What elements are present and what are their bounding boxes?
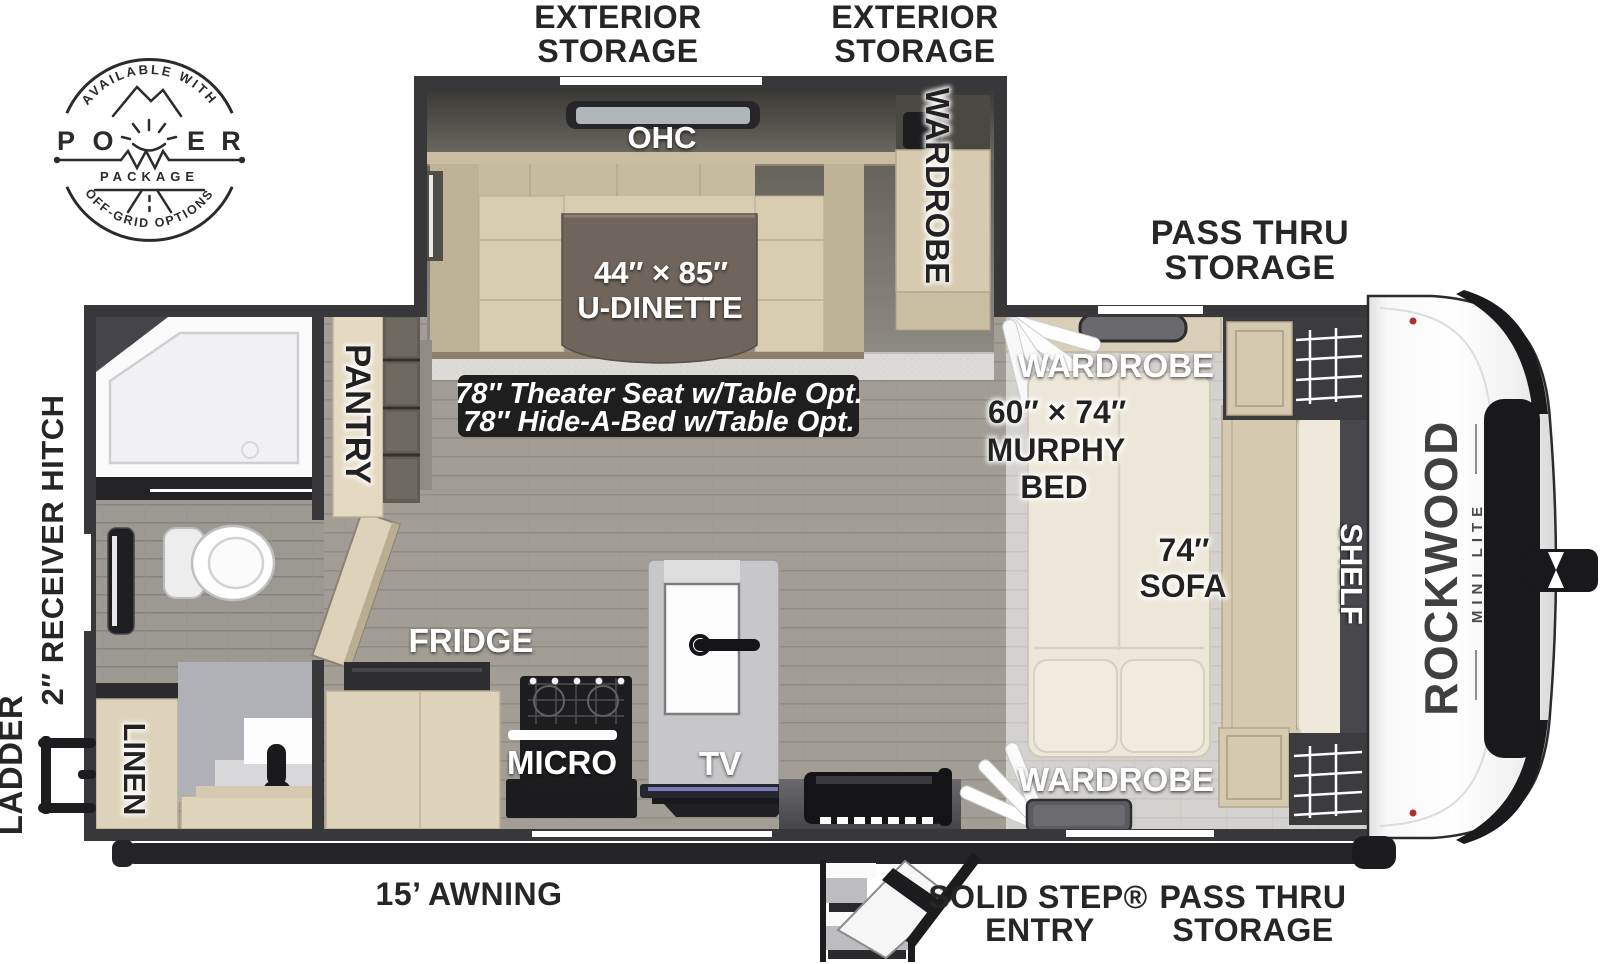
svg-text:STORAGE: STORAGE: [537, 33, 698, 69]
svg-text:60″ × 74″: 60″ × 74″: [988, 394, 1126, 430]
svg-text:78″ Hide-A-Bed w/Table Opt.: 78″ Hide-A-Bed w/Table Opt.: [463, 406, 854, 438]
svg-text:SOFA: SOFA: [1139, 568, 1226, 604]
svg-text:ENTRY: ENTRY: [985, 912, 1095, 948]
svg-text:SOLID STEP®: SOLID STEP®: [928, 879, 1147, 915]
svg-text:EXTERIOR: EXTERIOR: [831, 0, 999, 35]
svg-text:MINI LITE: MINI LITE: [1469, 501, 1486, 623]
svg-text:WARDROBE: WARDROBE: [1018, 761, 1214, 798]
svg-text:ROCKWOOD: ROCKWOOD: [1415, 420, 1467, 716]
svg-text:WARDROBE: WARDROBE: [919, 88, 956, 284]
svg-text:MICRO: MICRO: [507, 744, 617, 781]
svg-text:SHELF: SHELF: [1334, 523, 1369, 625]
svg-text:BED: BED: [1020, 469, 1088, 505]
svg-text:MURPHY: MURPHY: [987, 432, 1126, 468]
svg-text:PASS THRU: PASS THRU: [1151, 214, 1349, 252]
svg-text:U-DINETTE: U-DINETTE: [577, 290, 742, 325]
svg-text:STORAGE: STORAGE: [834, 33, 995, 69]
svg-text:FRIDGE: FRIDGE: [409, 622, 534, 659]
svg-text:2″ RECEIVER HITCH: 2″ RECEIVER HITCH: [35, 394, 70, 705]
svg-text:E: E: [187, 126, 205, 156]
svg-text:74″: 74″: [1159, 532, 1210, 568]
svg-text:EXTERIOR: EXTERIOR: [534, 0, 702, 35]
svg-text:R: R: [221, 126, 241, 156]
svg-text:WARDROBE: WARDROBE: [1018, 347, 1214, 384]
svg-text:PANTRY: PANTRY: [338, 344, 377, 484]
svg-text:44″ × 85″: 44″ × 85″: [594, 255, 728, 290]
svg-text:OHC: OHC: [628, 120, 697, 155]
svg-text:PASS THRU: PASS THRU: [1159, 879, 1346, 915]
svg-text:TV: TV: [699, 745, 741, 782]
svg-text:PACKAGE: PACKAGE: [100, 169, 199, 184]
svg-text:LADDER: LADDER: [0, 695, 29, 836]
svg-text:STORAGE: STORAGE: [1172, 912, 1333, 948]
svg-text:STORAGE: STORAGE: [1164, 249, 1335, 287]
svg-text:O: O: [92, 126, 113, 156]
svg-text:LINEN: LINEN: [117, 723, 152, 816]
svg-text:15’ AWNING: 15’ AWNING: [376, 876, 563, 912]
svg-text:P: P: [57, 126, 75, 156]
